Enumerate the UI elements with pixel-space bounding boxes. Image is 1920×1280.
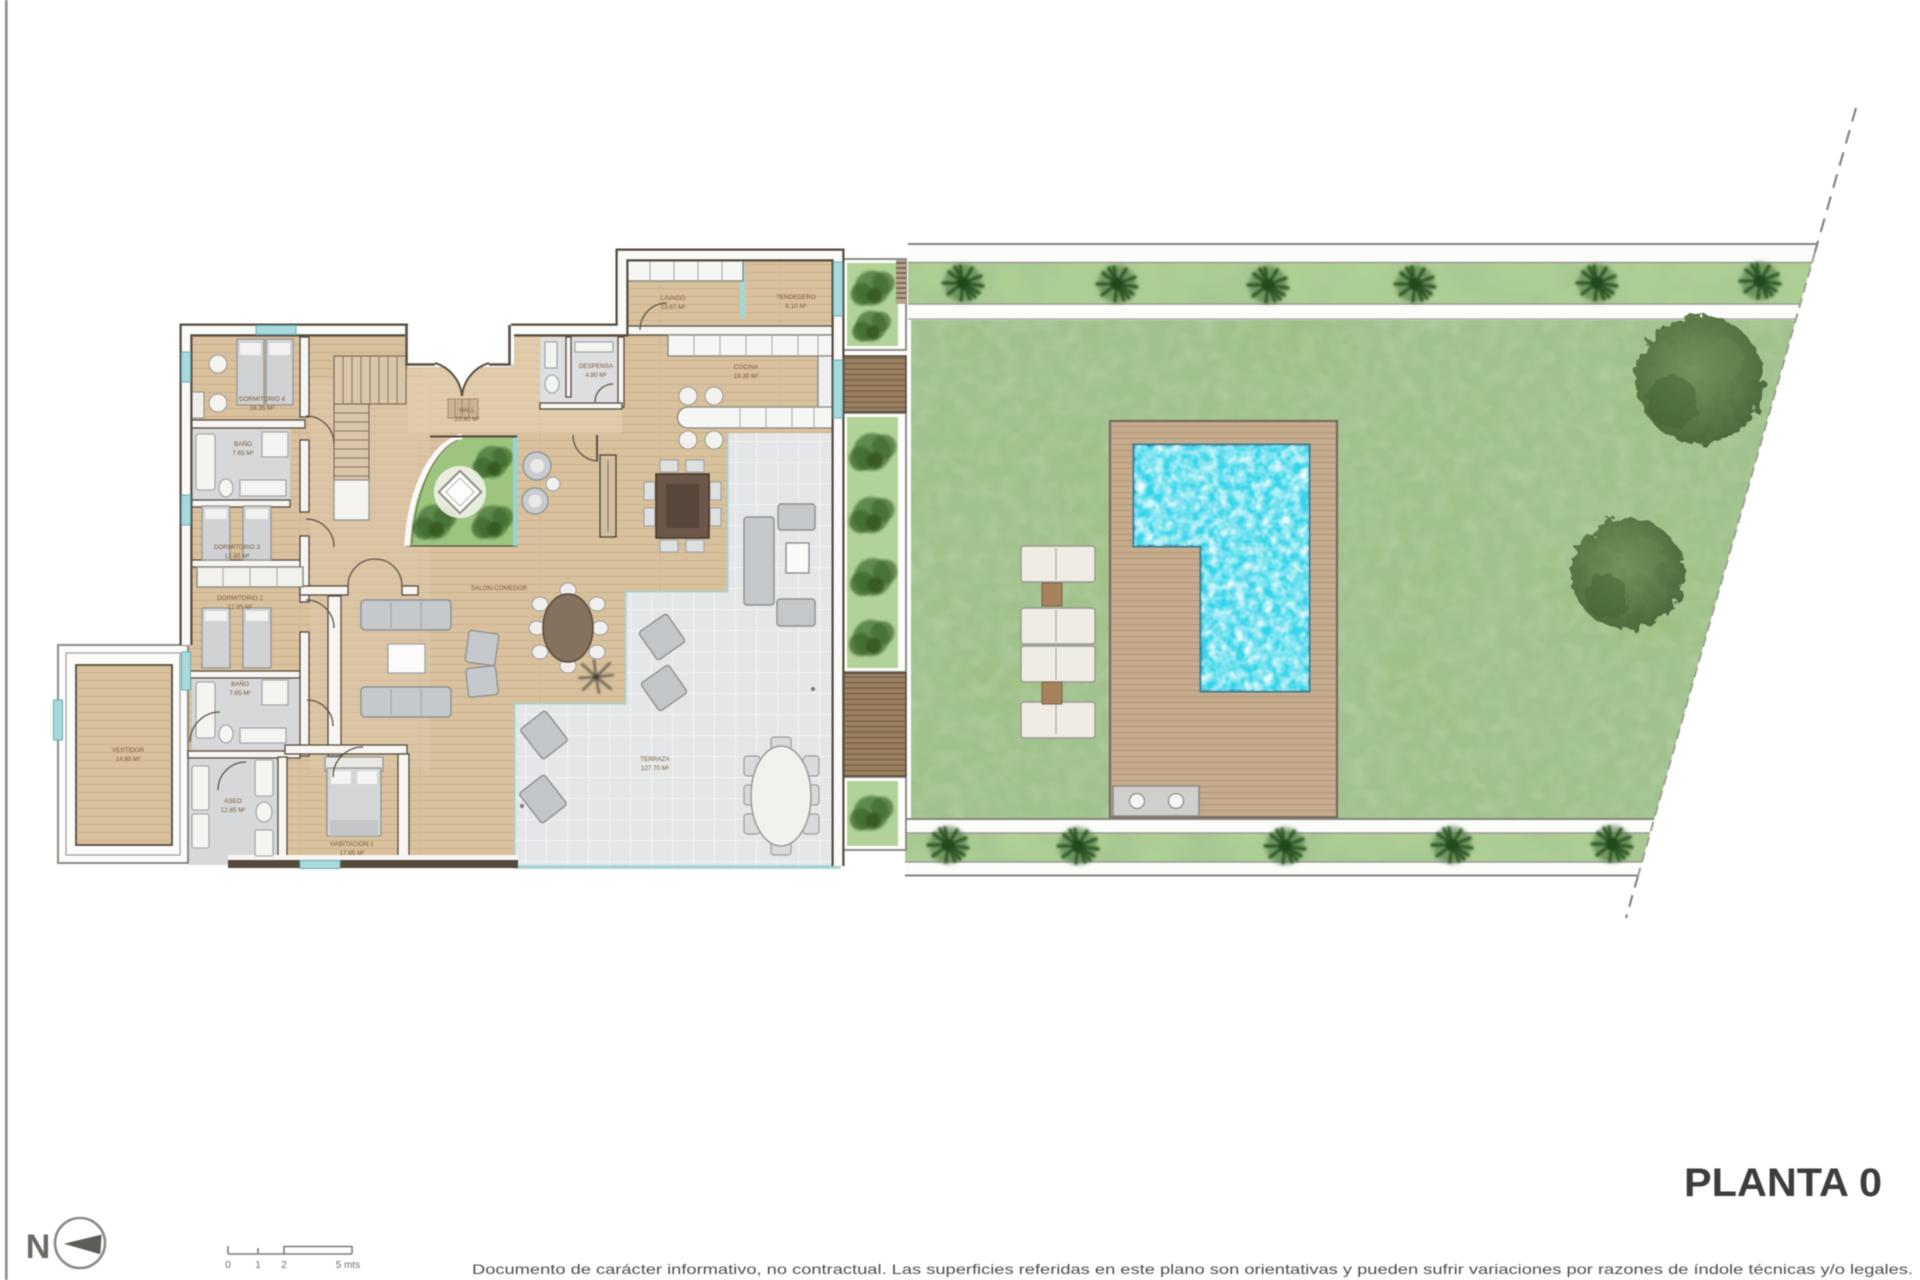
svg-text:DESPENSA: DESPENSA — [579, 363, 614, 370]
svg-text:12.85 M²: 12.85 M² — [225, 553, 250, 560]
svg-text:TERRAZA: TERRAZA — [640, 756, 670, 763]
svg-text:2: 2 — [281, 1260, 287, 1271]
svg-text:HABITACION 1: HABITACION 1 — [330, 841, 374, 848]
svg-text:12.85 M²: 12.85 M² — [228, 604, 253, 611]
svg-text:17.85 M²: 17.85 M² — [340, 850, 365, 857]
svg-text:23.80 M²: 23.80 M² — [455, 416, 480, 423]
svg-text:8.10 M²: 8.10 M² — [785, 303, 806, 310]
svg-text:BAÑO: BAÑO — [231, 679, 249, 688]
svg-text:LAVADO: LAVADO — [661, 295, 686, 302]
svg-text:VESTIDOR: VESTIDOR — [112, 747, 145, 754]
svg-text:127.70 M²: 127.70 M² — [641, 765, 669, 772]
svg-text:ASEO: ASEO — [224, 798, 242, 805]
svg-text:0: 0 — [225, 1260, 231, 1271]
svg-text:12.85 M²: 12.85 M² — [221, 807, 246, 814]
svg-text:Documento de carácter informat: Documento de carácter informativo, no co… — [472, 1262, 1913, 1277]
svg-text:PLANTA 0: PLANTA 0 — [1684, 1161, 1882, 1205]
svg-text:COCINA: COCINA — [734, 364, 759, 371]
svg-text:7.65 M²: 7.65 M² — [232, 450, 253, 457]
svg-text:4.80 M²: 4.80 M² — [585, 372, 606, 379]
svg-text:19.30 M²: 19.30 M² — [734, 373, 759, 380]
svg-text:DORMITORIO 4: DORMITORIO 4 — [239, 396, 286, 403]
svg-text:1: 1 — [255, 1260, 261, 1271]
svg-text:DORMITORIO 3: DORMITORIO 3 — [214, 544, 261, 551]
svg-text:14.80 M²: 14.80 M² — [116, 756, 141, 763]
svg-text:7.65 M²: 7.65 M² — [229, 690, 250, 697]
svg-text:HALL: HALL — [459, 407, 475, 414]
svg-text:SALON-COMEDOR: SALON-COMEDOR — [471, 585, 528, 592]
svg-text:BAÑO: BAÑO — [234, 439, 252, 448]
svg-text:DORMITORIO 2: DORMITORIO 2 — [217, 595, 264, 602]
svg-text:16.35 M²: 16.35 M² — [250, 405, 275, 412]
svg-text:5 mts: 5 mts — [336, 1260, 360, 1271]
svg-text:N: N — [26, 1228, 51, 1266]
svg-text:13.67 M²: 13.67 M² — [661, 304, 686, 311]
svg-text:TENDEDERO: TENDEDERO — [776, 294, 816, 301]
